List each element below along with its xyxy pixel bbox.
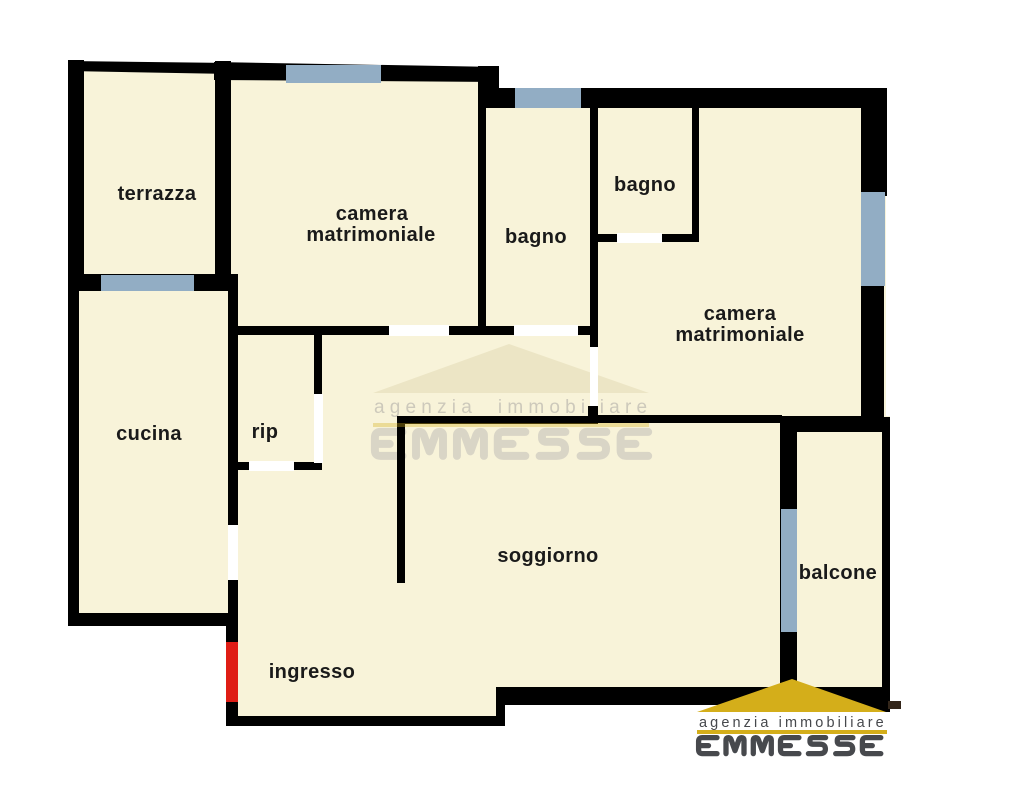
svg-text:bagno: bagno bbox=[614, 174, 676, 196]
svg-text:balcone: balcone bbox=[799, 562, 877, 584]
svg-text:cucina: cucina bbox=[116, 423, 182, 445]
svg-text:agenzia immobiliare: agenzia immobiliare bbox=[699, 715, 887, 731]
svg-text:ingresso: ingresso bbox=[269, 661, 356, 683]
svg-text:terrazza: terrazza bbox=[118, 183, 197, 205]
svg-text:agenzia immobiliare: agenzia immobiliare bbox=[374, 397, 652, 418]
svg-text:matrimoniale: matrimoniale bbox=[306, 224, 435, 246]
svg-text:rip: rip bbox=[252, 421, 279, 443]
svg-text:camera: camera bbox=[704, 303, 777, 325]
svg-text:matrimoniale: matrimoniale bbox=[675, 324, 804, 346]
svg-text:soggiorno: soggiorno bbox=[497, 545, 598, 567]
svg-text:bagno: bagno bbox=[505, 226, 567, 248]
svg-text:camera: camera bbox=[336, 203, 409, 225]
